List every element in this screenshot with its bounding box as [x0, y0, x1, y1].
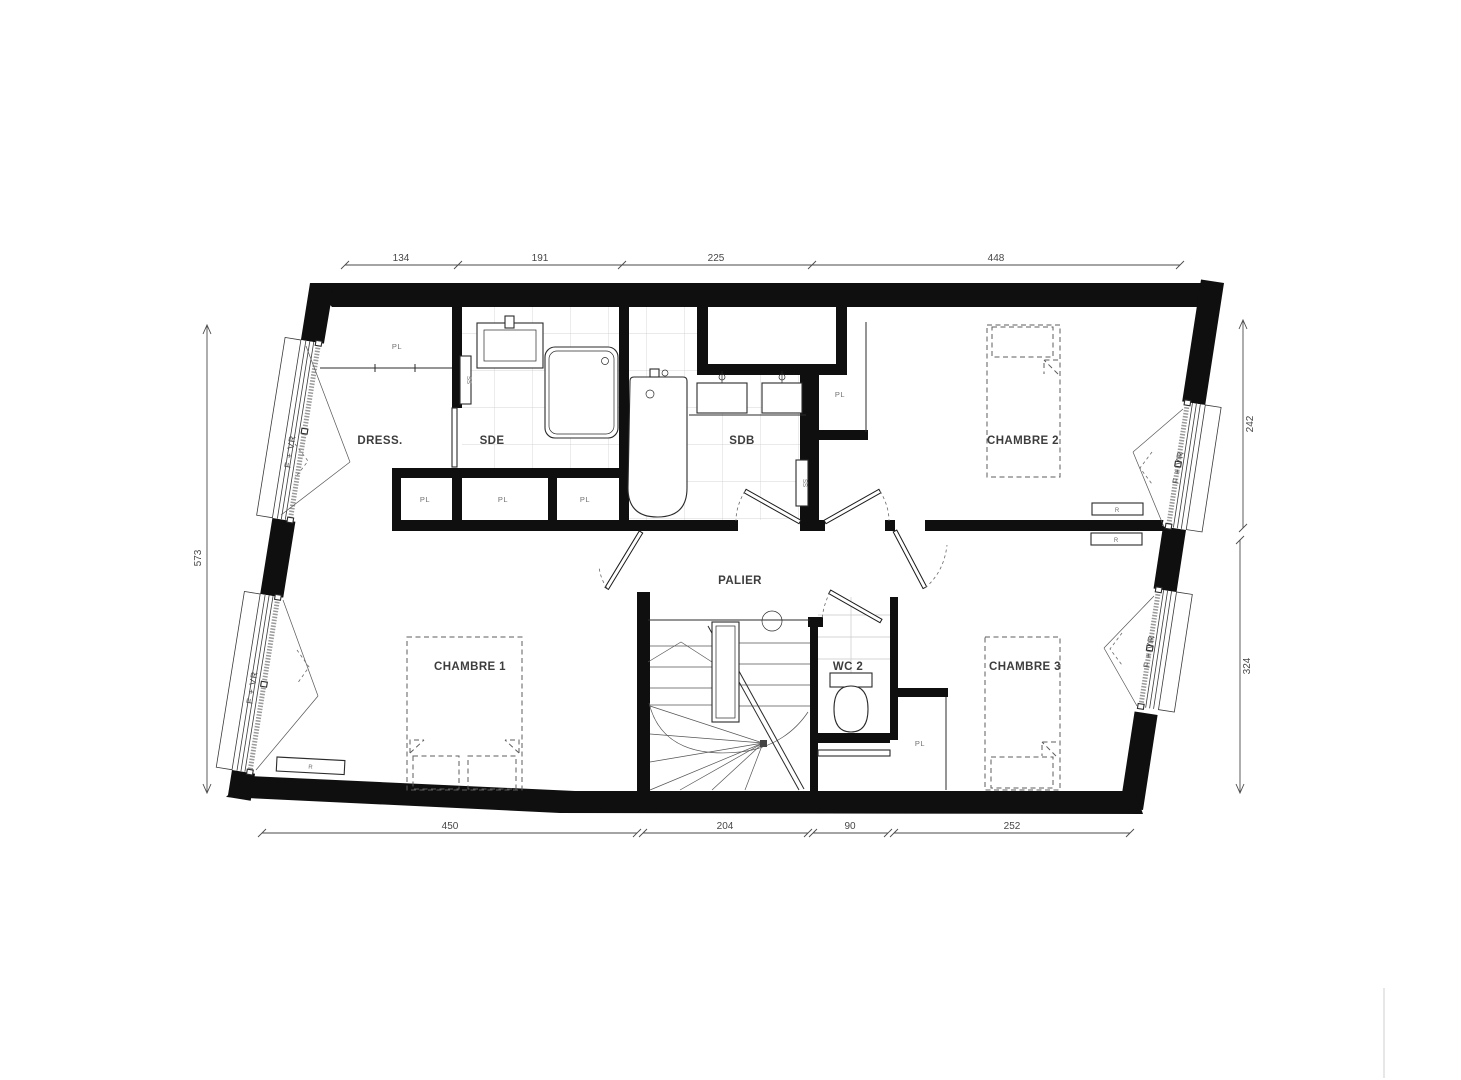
toilet-bowl [834, 686, 868, 732]
room-label: SDB [729, 435, 754, 447]
closet-label: PL [915, 739, 925, 748]
closet-label: PL [498, 495, 508, 504]
toilet-tank [830, 673, 872, 687]
dim-value: 225 [708, 253, 725, 264]
dim-value: 573 [193, 549, 204, 566]
room-label: SDE [480, 435, 505, 447]
dim-value: 134 [393, 253, 410, 264]
sink [697, 383, 747, 413]
sink [762, 383, 802, 413]
dim-value: 450 [442, 821, 459, 832]
sliding-door [452, 408, 457, 467]
dim-value: 90 [844, 821, 856, 832]
dim-value: 204 [717, 821, 734, 832]
radiator: R [276, 757, 345, 775]
shower [545, 347, 618, 438]
towel-rail-label: SS [465, 376, 471, 384]
room-label: CHAMBRE 2 [987, 435, 1059, 447]
room-label-palier: PALIER [718, 575, 762, 587]
room-label: CHAMBRE 3 [989, 661, 1061, 673]
room-label: DRESS. [357, 435, 402, 447]
room-label: WC 2 [833, 661, 863, 673]
bathtub [628, 377, 687, 517]
dim-value: 324 [1242, 657, 1253, 674]
dim-value: 448 [988, 253, 1005, 264]
svg-text:R: R [1115, 508, 1120, 514]
closet-label: PL [392, 342, 402, 351]
floor-plan: F + VR F + VR [0, 0, 1461, 1080]
dim-value: 242 [1245, 415, 1256, 432]
radiator: R [1092, 503, 1143, 515]
closet-label: PL [420, 495, 430, 504]
radiator: R [1091, 533, 1142, 545]
room-label: CHAMBRE 1 [434, 661, 506, 673]
canvas-background [0, 0, 1461, 1080]
dim-value: 252 [1004, 821, 1021, 832]
closet-label: PL [835, 390, 845, 399]
dim-value: 191 [532, 253, 549, 264]
svg-text:R: R [1114, 538, 1119, 544]
closet-label: PL [580, 495, 590, 504]
towel-rail-label: SS [801, 479, 807, 487]
